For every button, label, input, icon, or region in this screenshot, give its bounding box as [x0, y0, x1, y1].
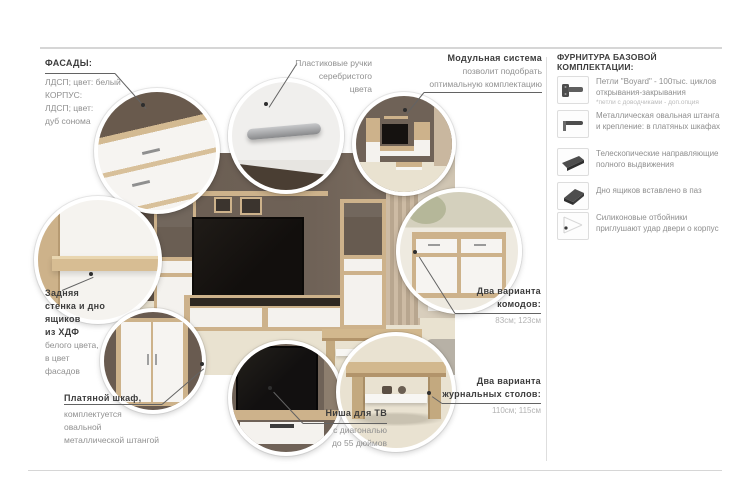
label-modular: Модульная система позволит подобрать опт… — [418, 52, 542, 91]
label-back-panel-line: белого цвета, — [45, 339, 137, 352]
mini-shelf — [384, 116, 408, 119]
label-back-panel-title: Задняя — [45, 287, 137, 300]
closeup-handle — [428, 244, 440, 246]
scene-glass-section — [344, 203, 382, 255]
hardware-item-label: Петли "Boyard" - 100тыс. циклов открыван… — [596, 77, 726, 98]
mini-tv — [382, 124, 408, 144]
sidebar-divider — [546, 57, 547, 461]
mini-tall-cabinet — [366, 118, 380, 162]
label-tv-niche-line: с диагональю — [300, 424, 387, 437]
label-back-panel-line: в цвет — [45, 352, 137, 365]
hardware-item-hinges: Петли "Boyard" - 100тыс. циклов открыван… — [557, 76, 727, 110]
label-handles-line: серебристого — [250, 70, 372, 83]
mini-curtain — [434, 96, 454, 166]
silicone-bumper-icon — [557, 212, 589, 240]
closeup-shelf — [52, 256, 158, 271]
label-facades-title: ФАСАДЫ: — [45, 57, 145, 70]
hardware-item-label: Металлическая овальная штанга и креплени… — [596, 111, 726, 132]
connector-line — [424, 92, 542, 93]
label-commodes: Два варианта комодов: 83см; 123см — [448, 285, 541, 326]
closeup-drawer — [416, 239, 457, 253]
connector-dot — [268, 386, 272, 390]
telescopic-rail-icon — [557, 148, 589, 176]
hardware-item-rod: Металлическая овальная штанга и креплени… — [557, 110, 727, 144]
closeup-plant — [406, 194, 446, 224]
closeup-handle — [155, 354, 157, 365]
label-coffee-tables-title: Два варианта — [440, 375, 541, 388]
label-facades-line: дуб сонома — [45, 115, 145, 128]
label-handles-line: Пластиковые ручки — [250, 57, 372, 70]
scene-tv — [192, 217, 304, 301]
closeup-table-top — [346, 362, 446, 377]
label-commodes-title: Два варианта — [448, 285, 541, 298]
mini-cabinet — [414, 122, 430, 156]
hardware-item-text: Металлическая овальная штанга и креплени… — [596, 111, 726, 132]
label-back-panel-title: из ХДФ — [45, 326, 137, 339]
scene-picture-frame — [240, 197, 262, 215]
scene-door-front — [344, 275, 382, 325]
label-back-panel: Задняя стенка и дно ящиков из ХДФ белого… — [45, 287, 137, 378]
closeup-silver-handle — [247, 123, 322, 140]
hardware-item-label: Силиконовые отбойники приглушают удар дв… — [596, 213, 726, 234]
closeup-handle — [147, 354, 149, 365]
scene-stand-drawer — [190, 308, 262, 327]
label-tv-niche-title: Ниша для ТВ — [300, 407, 387, 420]
connector-dot — [89, 272, 93, 276]
label-facades-line: ЛДСП; цвет: белый — [45, 76, 145, 89]
label-commodes-title: комодов: — [448, 298, 541, 311]
label-facades: ФАСАДЫ: ЛДСП; цвет: белый КОРПУС: ЛДСП; … — [45, 57, 145, 128]
label-facades-line: ЛДСП; цвет: — [45, 102, 145, 115]
scene-wall-shelf — [200, 191, 328, 196]
label-commodes-sizes: 83см; 123см — [448, 315, 541, 326]
scene-stand-niche — [190, 298, 340, 306]
label-handles-line: цвета — [250, 83, 372, 96]
hardware-item-bumpers: Силиконовые отбойники приглушают удар дв… — [557, 212, 727, 246]
hardware-item-label: Телескопические направляющие полного выд… — [596, 149, 726, 170]
label-coffee-tables-sizes: 110см; 115см — [440, 405, 541, 416]
top-divider — [40, 47, 722, 49]
mini-tv-stand — [380, 146, 414, 156]
closeup-handle — [474, 244, 486, 246]
label-back-panel-line: фасадов — [45, 365, 137, 378]
label-back-panel-title: стенка и дно — [45, 300, 137, 313]
label-modular-line: позволит подобрать — [418, 65, 542, 78]
connector-dot — [427, 391, 431, 395]
hardware-item-rails: Телескопические направляющие полного выд… — [557, 148, 727, 178]
scene-picture-frame — [214, 197, 232, 213]
hardware-item-text: Силиконовые отбойники приглушают удар дв… — [596, 213, 726, 234]
label-modular-title: Модульная система — [418, 52, 542, 65]
closeup-tv — [236, 346, 318, 412]
closeup-handle — [270, 424, 294, 428]
hardware-item-text: Петли "Boyard" - 100тыс. циклов открыван… — [596, 77, 726, 108]
scene-tv-stand — [184, 295, 346, 331]
hardware-item-note: *петли с доводчиками - доп.опция — [596, 99, 726, 108]
scene-drawer-front — [344, 259, 382, 271]
scene-drawer-front — [157, 261, 193, 273]
label-back-panel-title: ящиков — [45, 313, 137, 326]
scene-stand-drawer — [268, 308, 340, 327]
label-coffee-tables: Два варианта журнальных столов: 110см; 1… — [440, 375, 541, 416]
connector-dot — [403, 108, 407, 112]
furniture-infographic: ФАСАДЫ: ЛДСП; цвет: белый КОРПУС: ЛДСП; … — [0, 0, 750, 500]
label-handles: Пластиковые ручки серебристого цвета — [250, 57, 372, 96]
label-coffee-tables-title: журнальных столов: — [440, 388, 541, 401]
connector-dot — [413, 250, 417, 254]
label-tv-niche: Ниша для ТВ с диагональю до 55 дюймов — [300, 407, 387, 450]
label-modular-line: оптимальную комплектацию — [418, 78, 542, 91]
hardware-item-label: Дно ящиков вставлено в паз — [596, 186, 726, 197]
label-wardrobe: Платяной шкаф, комплектуется овальной ме… — [64, 392, 174, 447]
label-wardrobe-line: металлической штангой — [64, 434, 174, 447]
hardware-title: ФУРНИТУРА БАЗОВОЙ КОМПЛЕКТАЦИИ: — [557, 52, 729, 72]
label-wardrobe-title: Платяной шкаф, — [64, 392, 174, 405]
mini-coffee-table — [396, 162, 422, 170]
closeup-table-shelf — [365, 394, 427, 403]
hardware-item-text: Дно ящиков вставлено в паз — [596, 186, 726, 197]
label-wardrobe-line: овальной — [64, 421, 174, 434]
connector-dot — [200, 362, 204, 366]
closeup-wood-edge — [228, 162, 344, 194]
hardware-item-text: Телескопические направляющие полного выд… — [596, 149, 726, 170]
oval-rod-icon — [557, 110, 589, 138]
connector-dot — [264, 102, 268, 106]
closeup-drawer — [461, 239, 502, 253]
drawer-bottom-icon — [557, 182, 589, 210]
label-wardrobe-line: комплектуется — [64, 408, 174, 421]
label-facades-line: КОРПУС: — [45, 89, 145, 102]
label-tv-niche-line: до 55 дюймов — [300, 437, 387, 450]
hinge-icon — [557, 76, 589, 104]
scene-right-cabinet — [340, 199, 386, 331]
closeup-decor — [382, 386, 392, 394]
bottom-divider — [28, 470, 722, 471]
closeup-decor — [398, 386, 406, 394]
hardware-item-drawer-bottom: Дно ящиков вставлено в паз — [557, 182, 727, 210]
